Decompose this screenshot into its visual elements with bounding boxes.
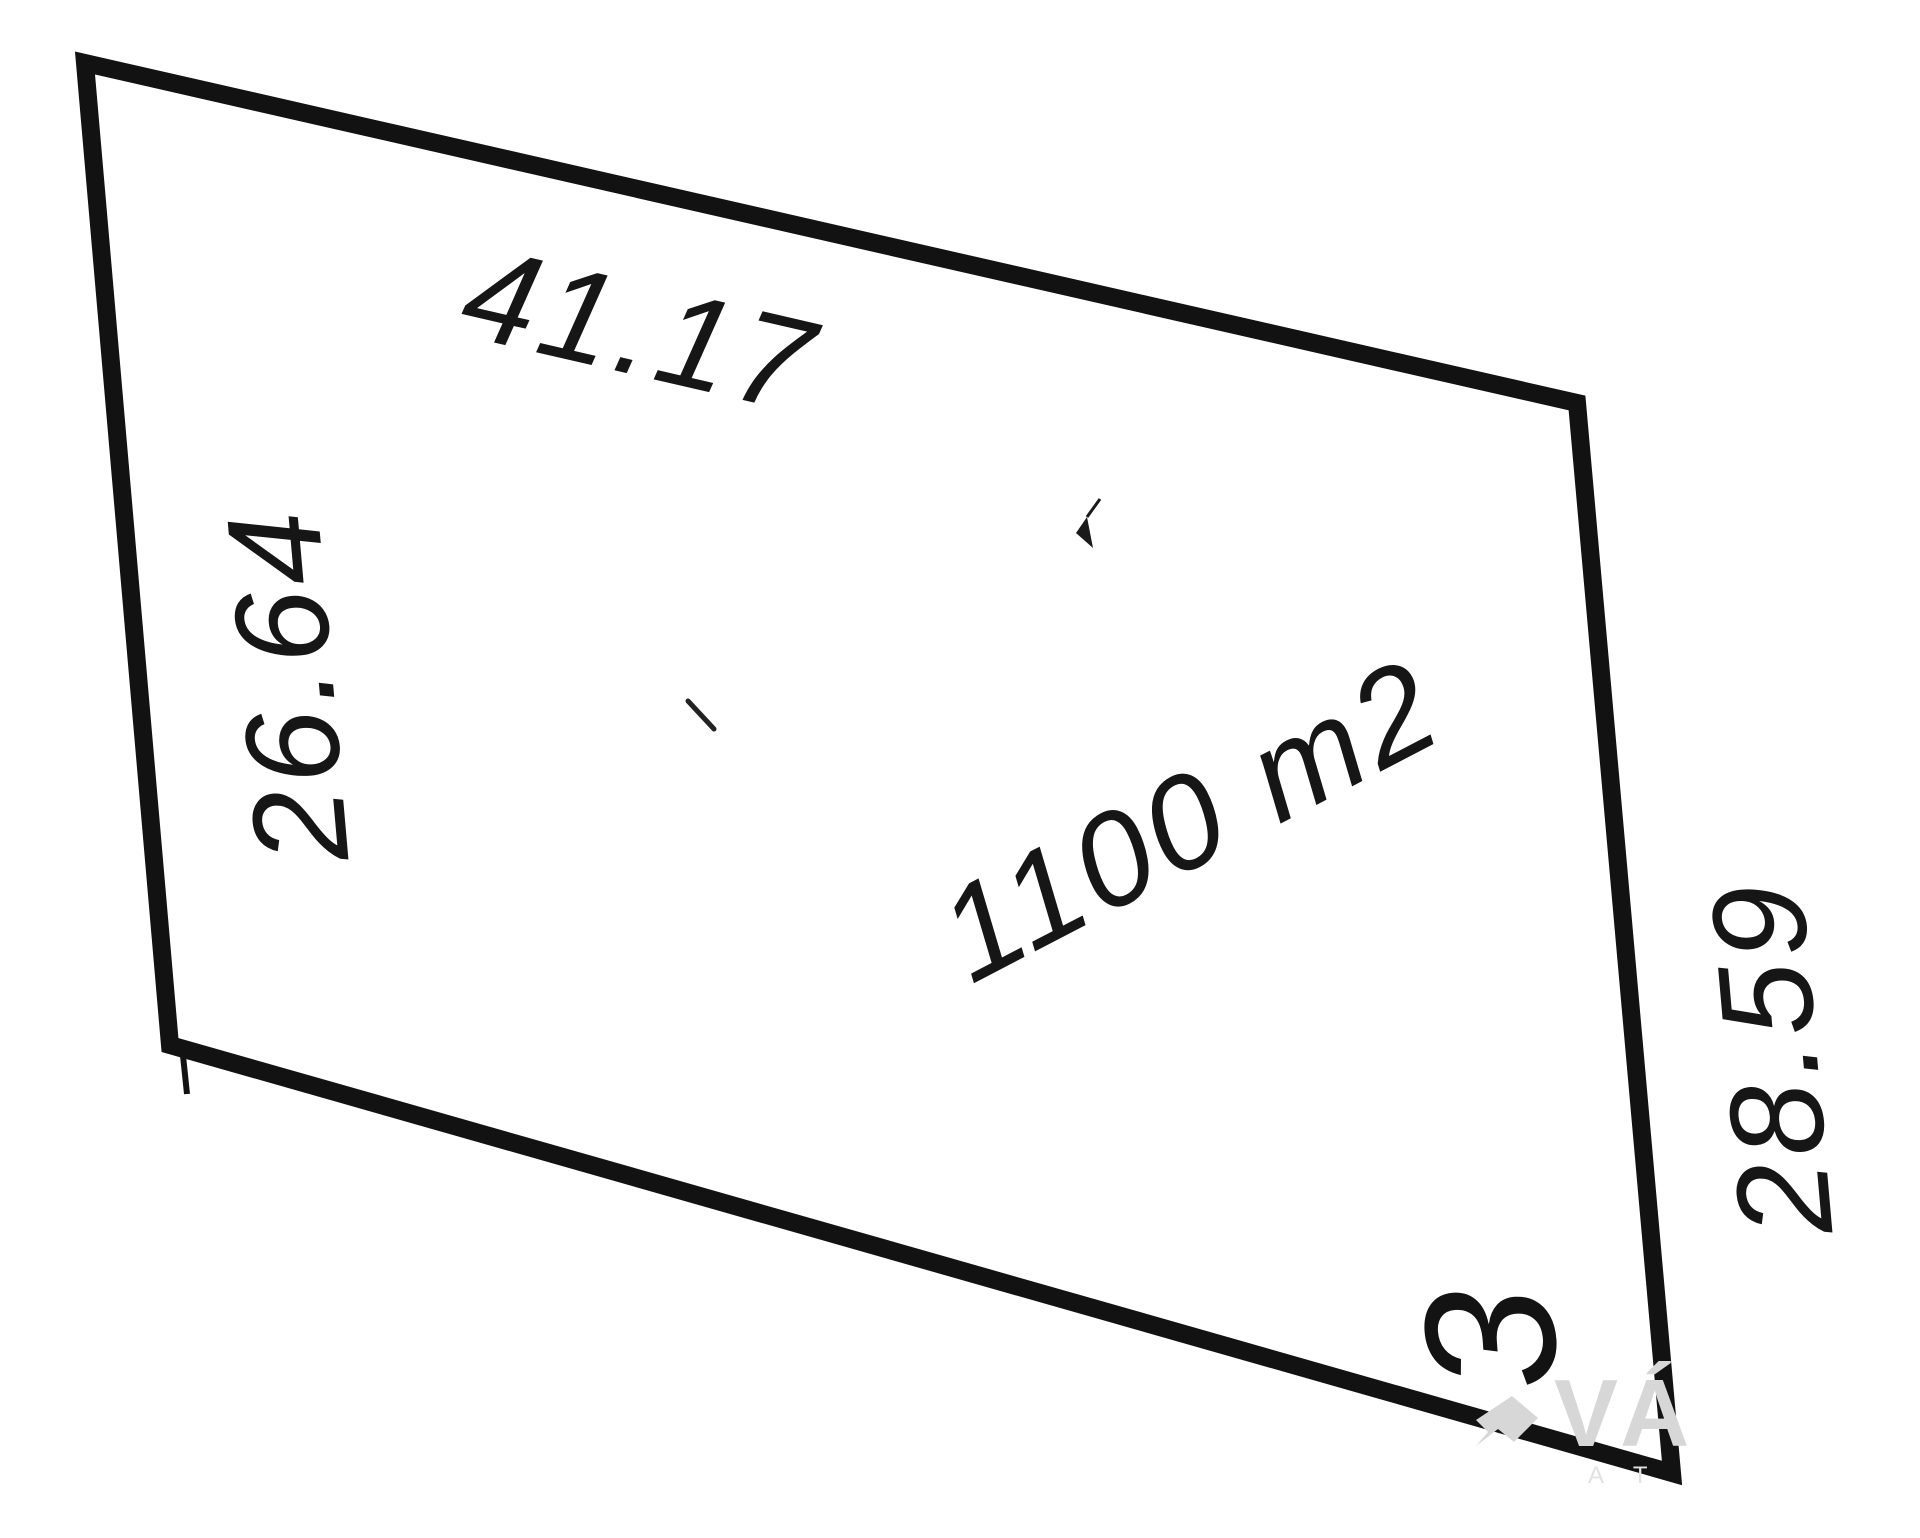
dimension-label-left: 26.64 bbox=[207, 502, 370, 869]
watermark-text: VÁ bbox=[1554, 1366, 1691, 1462]
watermark-subtext: A T bbox=[1588, 1462, 1660, 1490]
parcel-plan-page: { "page": { "background": "#ffffff", "in… bbox=[0, 0, 1920, 1538]
watermark-logo-icon bbox=[1474, 1394, 1540, 1448]
watermark: VÁ A T bbox=[1468, 1366, 1798, 1516]
dimension-label-right: 28.59 bbox=[1691, 875, 1854, 1242]
